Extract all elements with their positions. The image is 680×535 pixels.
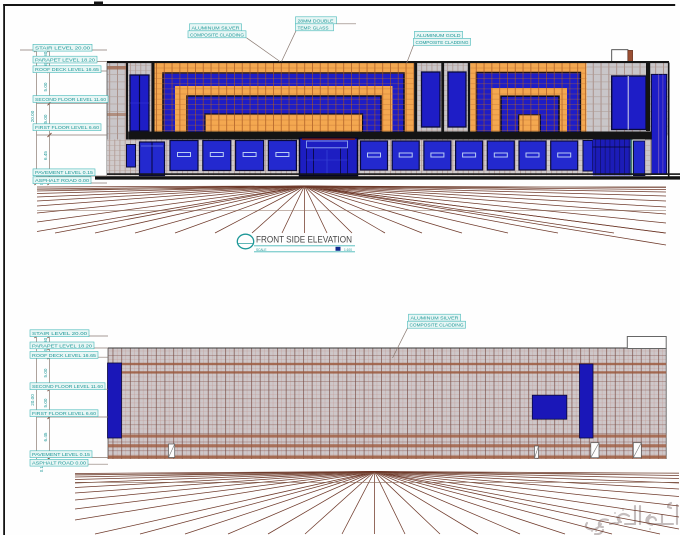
svg-text:PARAPET LEVEL 18.20: PARAPET LEVEL 18.20 bbox=[35, 58, 96, 63]
svg-text:COMPOSITE CLADDING: COMPOSITE CLADDING bbox=[190, 32, 244, 38]
svg-text:ASPHALT ROAD 0.00: ASPHALT ROAD 0.00 bbox=[32, 461, 87, 466]
svg-text:20.00: 20.00 bbox=[30, 110, 35, 122]
svg-text:COMPOSITE CLADDING: COMPOSITE CLADDING bbox=[416, 40, 469, 46]
svg-text:28MM DOUBLE: 28MM DOUBLE bbox=[298, 18, 335, 24]
svg-text:STAIR LEVEL 20.00: STAIR LEVEL 20.00 bbox=[32, 331, 88, 336]
svg-text:FRONT SIDE ELEVATION: FRONT SIDE ELEVATION bbox=[256, 235, 352, 246]
svg-text:ROOF DECK LEVEL 16.65: ROOF DECK LEVEL 16.65 bbox=[32, 353, 96, 358]
svg-text:SECOND FLOOR LEVEL 11.60: SECOND FLOOR LEVEL 11.60 bbox=[35, 97, 106, 102]
svg-text:5.00: 5.00 bbox=[43, 368, 48, 377]
svg-text:5.00: 5.00 bbox=[43, 82, 48, 91]
svg-text:5.00: 5.00 bbox=[43, 114, 48, 123]
svg-text:PAVEMENT LEVEL 0.15: PAVEMENT LEVEL 0.15 bbox=[35, 170, 94, 175]
svg-text:STAIR LEVEL 20.00: STAIR LEVEL 20.00 bbox=[35, 46, 91, 51]
svg-text:1:100: 1:100 bbox=[344, 248, 352, 252]
svg-text:FIRST FLOOR LEVEL 6.60: FIRST FLOOR LEVEL 6.60 bbox=[35, 125, 99, 130]
svg-text:SECOND FLOOR LEVEL 11.60: SECOND FLOOR LEVEL 11.60 bbox=[32, 384, 103, 389]
svg-text:PAVEMENT LEVEL 0.15: PAVEMENT LEVEL 0.15 bbox=[32, 452, 91, 457]
svg-text:PARAPET LEVEL 18.20: PARAPET LEVEL 18.20 bbox=[32, 343, 93, 348]
svg-text:ASPHALT ROAD 0.00: ASPHALT ROAD 0.00 bbox=[35, 178, 90, 183]
svg-text:ROOF DECK LEVEL 16.65: ROOF DECK LEVEL 16.65 bbox=[35, 67, 99, 72]
svg-text:6.45: 6.45 bbox=[43, 151, 48, 160]
svg-text:5.00: 5.00 bbox=[43, 398, 48, 407]
svg-text:ALUMINUM SILVER: ALUMINUM SILVER bbox=[192, 25, 240, 31]
svg-text:ALUMINUM SILVER: ALUMINUM SILVER bbox=[411, 316, 459, 322]
svg-text:SCALE: SCALE bbox=[256, 248, 266, 252]
svg-text:TEMP. GLASS: TEMP. GLASS bbox=[298, 25, 330, 31]
svg-text:6.45: 6.45 bbox=[43, 432, 48, 441]
svg-text:20.00: 20.00 bbox=[30, 394, 35, 406]
svg-text:COMPOSITE CLADDING: COMPOSITE CLADDING bbox=[410, 323, 464, 329]
svg-text:ALUMINUM GOLD: ALUMINUM GOLD bbox=[417, 33, 461, 39]
svg-text:FIRST FLOOR LEVEL 6.60: FIRST FLOOR LEVEL 6.60 bbox=[32, 411, 96, 416]
